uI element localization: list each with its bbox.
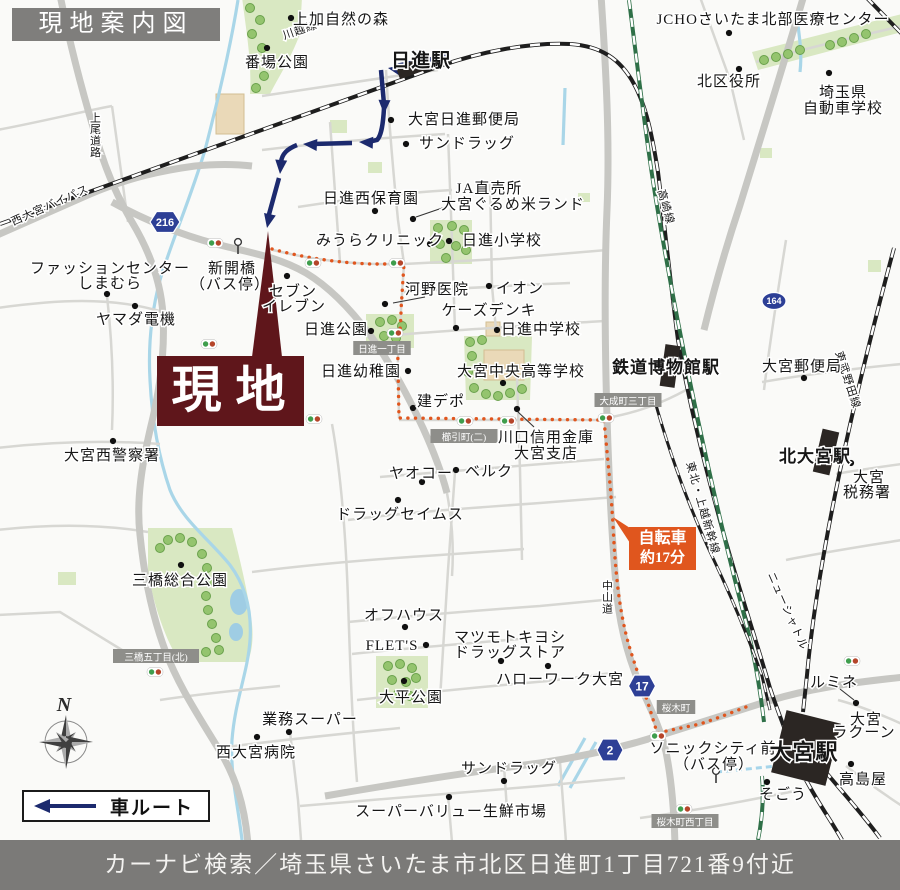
compass-point — [39, 742, 66, 748]
car-route-arrowhead — [261, 213, 276, 229]
map-label: スーパーバリュー生鮮市場 — [355, 803, 547, 820]
map-label: 埼玉県 — [819, 84, 867, 101]
map-label: FLET'S — [366, 638, 419, 654]
car-route-arrow-icon — [34, 799, 98, 813]
route-shield-number: 2 — [607, 743, 614, 757]
poi-dot — [501, 778, 507, 784]
poi-dot — [402, 624, 408, 630]
map-label: 税務署 — [843, 484, 891, 501]
map-label: 大宮郵便局 — [762, 358, 842, 375]
road-minor — [0, 612, 122, 650]
poi-dot — [453, 467, 459, 473]
map-label: イオン — [496, 281, 544, 297]
compass-north-label: N — [56, 694, 73, 716]
map-label: ファッションセンター — [30, 260, 190, 277]
tree-icon — [388, 676, 397, 685]
road-minor — [0, 442, 160, 448]
poi-dot — [382, 301, 388, 307]
tree-icon — [862, 30, 871, 39]
traffic-signal-red — [210, 341, 215, 346]
poi-dot — [453, 325, 459, 331]
tree-icon — [838, 38, 847, 47]
poi-dot — [545, 663, 551, 669]
map-label: ケーズデンキ — [441, 301, 536, 319]
green-area — [868, 260, 881, 272]
tree-icon — [260, 72, 269, 81]
poi-dot — [410, 216, 416, 222]
car-route-arrowhead — [303, 138, 318, 151]
tree-icon — [198, 550, 207, 559]
poi-dot — [178, 562, 184, 568]
car-route-line — [368, 108, 384, 142]
map-label: 建デポ — [417, 392, 465, 410]
map-label: セブン — [269, 282, 317, 300]
map-label: 大宮支店 — [514, 445, 578, 462]
map-label: ヤマダ電機 — [96, 311, 176, 328]
car-route-arrowhead — [359, 136, 374, 149]
traffic-signal-green — [459, 418, 464, 423]
poi-dot — [446, 238, 452, 244]
map-label: 自動車学校 — [803, 100, 883, 117]
tree-icon — [246, 4, 255, 13]
traffic-signal-red — [466, 418, 471, 423]
bus-stop-icon — [235, 239, 242, 246]
car-route-line — [381, 70, 384, 104]
tree-icon — [506, 389, 515, 398]
location-map-page: 216164172日進一丁目櫛引町(二)大成町三丁目三橋五丁目(北)桜木町桜木町… — [0, 0, 900, 890]
traffic-signal-red — [398, 260, 403, 265]
traffic-signal-red — [216, 240, 221, 245]
poi-dot — [446, 794, 452, 800]
map-label: 大宮ぐるめ米ランド — [441, 196, 585, 213]
car-route-line — [312, 143, 352, 144]
tree-icon — [204, 606, 213, 615]
page-title: 現地案内図 — [12, 8, 220, 41]
map-label: 高島屋 — [839, 771, 887, 788]
map-label: 河野医院 — [405, 280, 469, 298]
tree-icon — [466, 338, 475, 347]
site-marker-label: 現地 — [172, 362, 300, 418]
tree-icon — [434, 224, 443, 233]
poi-dot — [801, 375, 807, 381]
map-label: 番場公園 — [245, 54, 309, 71]
tree-icon — [482, 390, 491, 399]
poi-dot — [853, 700, 859, 706]
poi-dot — [368, 328, 374, 334]
poi-dot — [494, 327, 500, 333]
poi-dot — [423, 642, 429, 648]
area-name-tag-text: 日進一丁目 — [358, 344, 406, 356]
green-area — [58, 572, 76, 585]
poi-dot — [500, 380, 506, 386]
traffic-signal-green — [389, 330, 394, 335]
map-label: 大宮駅 — [769, 739, 838, 764]
tree-icon — [470, 384, 479, 393]
traffic-signal-green — [149, 669, 154, 674]
map-label: 大宮 — [853, 469, 885, 486]
tree-icon — [412, 674, 421, 683]
route-shield-number: 216 — [156, 217, 174, 229]
traffic-signal-red — [314, 260, 319, 265]
map-label: 北大宮駅 — [779, 446, 851, 466]
tree-icon — [164, 536, 173, 545]
map-label: 西大宮病院 — [216, 743, 296, 761]
railway-line — [806, 780, 842, 840]
map-label: 上加自然の森 — [293, 11, 389, 28]
map-label: （バス停） — [674, 756, 754, 773]
tree-icon — [212, 634, 221, 643]
tree-icon — [452, 242, 461, 251]
poi-dot — [395, 497, 401, 503]
traffic-signal-green — [678, 806, 683, 811]
road-minor — [160, 686, 280, 700]
tree-icon — [156, 544, 165, 553]
tree-icon — [408, 664, 417, 673]
road-minor — [252, 549, 524, 572]
map-label: ラクーン — [832, 724, 895, 741]
transit-line-label: 中山道 — [602, 580, 614, 616]
traffic-signal-green — [846, 658, 851, 663]
tree-icon — [442, 254, 451, 263]
transit-line-label: ニューシャトル — [765, 571, 810, 652]
road-minor — [0, 526, 148, 532]
map-label: しまむら — [78, 275, 142, 292]
car-route-legend-label: 車ルート — [110, 793, 194, 820]
map-label: 大宮中央高等学校 — [457, 362, 585, 380]
traffic-signal-green — [203, 341, 208, 346]
map-label: 日進西保育園 — [323, 190, 419, 207]
road-minor — [332, 424, 357, 782]
river — [563, 88, 565, 145]
map-label: 日進幼稚園 — [321, 363, 401, 380]
poi-dot — [514, 406, 520, 412]
area-name-tag-text: 大成町三丁目 — [599, 396, 656, 408]
map-label: 川口信用金庫 — [498, 429, 594, 446]
map-label: 北区役所 — [697, 73, 761, 90]
compass-point — [66, 742, 72, 769]
tree-icon — [252, 84, 261, 93]
poi-dot — [826, 70, 832, 76]
map-label: 日進公園 — [304, 321, 368, 338]
map-label: JCHOさいたま北部医療センター — [656, 11, 889, 28]
map-label: 業務スーパー — [262, 711, 358, 728]
navi-address-text: カーナビ検索／埼玉県さいたま市北区日進町1丁目721番9付近 — [104, 852, 796, 877]
tree-icon — [784, 50, 793, 59]
tree-icon — [796, 46, 805, 55]
tree-icon — [518, 385, 527, 394]
traffic-signal-red — [607, 415, 612, 420]
road-minor — [786, 540, 900, 560]
tree-icon — [826, 41, 835, 50]
tree-icon — [388, 316, 397, 325]
route-shield-number: 164 — [766, 296, 781, 306]
traffic-signal-red — [156, 669, 161, 674]
map-label: マツモトキヨシ — [454, 630, 566, 646]
map-label: 大宮日進郵便局 — [408, 111, 520, 128]
area-name-tag-text: 桜木町 — [662, 703, 691, 715]
map-label: ヤオコー — [389, 466, 453, 482]
map-label: オフハウス — [364, 607, 444, 624]
traffic-signal-red — [396, 330, 401, 335]
page-title-text: 現地案内図 — [39, 11, 194, 37]
navi-address-bar: カーナビ検索／埼玉県さいたま市北区日進町1丁目721番9付近 — [0, 840, 900, 890]
tree-icon — [188, 538, 197, 547]
tree-icon — [176, 534, 185, 543]
tree-icon — [384, 662, 393, 671]
map-label: 三橋総合公園 — [132, 572, 228, 589]
tree-icon — [376, 318, 385, 327]
map-label: ソニックシティ前 — [649, 740, 776, 757]
compass-point — [66, 736, 93, 742]
green-area — [368, 162, 382, 173]
poi-dot — [110, 438, 116, 444]
green-area — [760, 148, 772, 158]
poi-dot — [286, 729, 292, 735]
poi-dot — [284, 273, 290, 279]
area-name-tag-text: 三橋五丁目(北) — [124, 652, 187, 664]
traffic-signal-green — [652, 733, 657, 738]
tree-icon — [850, 34, 859, 43]
map-label: （バス停） — [190, 276, 270, 293]
poi-dot — [254, 734, 260, 740]
tree-icon — [202, 592, 211, 601]
traffic-signal-red — [659, 733, 664, 738]
green-area — [330, 120, 347, 133]
map-label: 日進小学校 — [462, 232, 542, 249]
map-label: ドラッグセイムス — [336, 506, 464, 523]
bike-time-badge: 自転車 約17分 — [629, 527, 696, 570]
map-label: サンドラッグ — [461, 760, 557, 777]
map-label: みうらクリニック — [316, 232, 444, 249]
bike-badge-time: 約17分 — [629, 549, 696, 567]
tree-icon — [760, 56, 769, 65]
poi-dot — [388, 117, 394, 123]
site-map: 216164172日進一丁目櫛引町(二)大成町三丁目三橋五丁目(北)桜木町桜木町… — [0, 0, 900, 840]
car-route-arrowhead — [274, 160, 287, 175]
map-label: 鉄道博物館駅 — [612, 357, 720, 377]
tree-icon — [478, 336, 487, 345]
poi-dot — [132, 303, 138, 309]
poi-dot — [264, 45, 270, 51]
poi-dot — [764, 779, 770, 785]
map-label: ハローワーク大宮 — [496, 671, 624, 688]
map-label: ベルク — [465, 463, 513, 480]
tree-icon — [215, 646, 224, 655]
area-name-tag-text: 櫛引町(二) — [442, 432, 486, 444]
tree-icon — [396, 660, 405, 669]
tree-icon — [202, 648, 211, 657]
map-label: 日進中学校 — [501, 321, 581, 338]
tree-icon — [208, 620, 217, 629]
tree-icon — [448, 222, 457, 231]
map-label: JA直売所 — [456, 180, 523, 197]
poi-dot — [736, 66, 742, 72]
map-label: 大宮西警察署 — [64, 446, 160, 464]
route-shield-number: 17 — [635, 679, 649, 693]
road-minor — [0, 301, 163, 312]
tree-icon — [772, 53, 781, 62]
traffic-signal-green — [391, 260, 396, 265]
site-marker: 現地 — [157, 356, 304, 426]
map-label: サンドラッグ — [419, 135, 515, 152]
map-label: そごう — [759, 786, 807, 803]
road-minor — [517, 378, 522, 560]
poi-dot — [403, 141, 409, 147]
poi-dot — [410, 405, 416, 411]
traffic-signal-green — [308, 416, 313, 421]
poi-dot — [372, 208, 378, 214]
transit-line-label: 上尾道路 — [90, 112, 102, 159]
building-footprint — [216, 94, 244, 134]
traffic-signal-red — [685, 806, 690, 811]
map-label: 新開橋 — [208, 260, 256, 277]
map-label: 日進駅 — [391, 49, 451, 71]
traffic-signal-red — [315, 416, 320, 421]
traffic-signal-green — [502, 418, 507, 423]
map-label: イレブン — [262, 297, 326, 315]
traffic-signal-red — [509, 418, 514, 423]
traffic-signal-green — [307, 260, 312, 265]
map-label: 大平公園 — [379, 689, 443, 706]
poi-dot — [486, 283, 492, 289]
bike-badge-mode: 自転車 — [629, 529, 696, 549]
pond — [229, 623, 243, 641]
tree-icon — [256, 16, 265, 25]
poi-dot — [405, 368, 411, 374]
tree-icon — [203, 564, 212, 573]
map-label: ルミネ — [810, 674, 858, 691]
poi-dot — [401, 678, 407, 684]
car-route-legend: 車ルート — [22, 790, 210, 822]
poi-dot — [848, 761, 854, 767]
car-route-line — [268, 178, 279, 218]
tree-icon — [494, 392, 503, 401]
traffic-signal-green — [600, 415, 605, 420]
traffic-signal-red — [853, 658, 858, 663]
tree-icon — [248, 30, 257, 39]
tree-icon — [468, 352, 477, 361]
transit-line-label: 西大宮バイパス — [9, 181, 91, 228]
poi-dot — [726, 30, 732, 36]
area-name-tag-text: 桜木町西丁目 — [656, 817, 713, 829]
map-label: ドラッグストア — [454, 644, 566, 661]
traffic-signal-green — [209, 240, 214, 245]
